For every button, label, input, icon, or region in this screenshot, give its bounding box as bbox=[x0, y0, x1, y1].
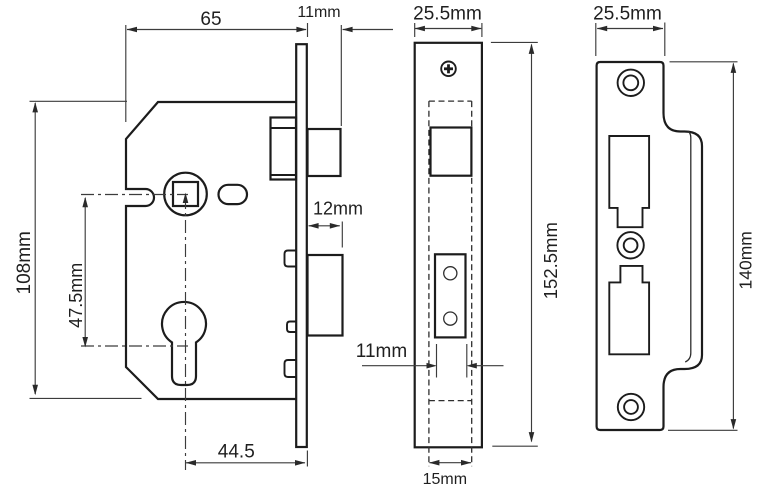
svg-text:25.5mm: 25.5mm bbox=[413, 4, 482, 25]
svg-text:108mm: 108mm bbox=[14, 231, 35, 294]
svg-text:15mm: 15mm bbox=[423, 471, 467, 488]
svg-text:65: 65 bbox=[200, 9, 221, 30]
svg-text:11mm: 11mm bbox=[297, 4, 340, 21]
svg-text:12mm: 12mm bbox=[313, 199, 363, 219]
svg-text:140mm: 140mm bbox=[736, 231, 756, 289]
svg-text:44.5: 44.5 bbox=[218, 442, 255, 463]
svg-text:25.5mm: 25.5mm bbox=[593, 4, 662, 25]
svg-text:152.5mm: 152.5mm bbox=[540, 222, 561, 299]
svg-text:11mm: 11mm bbox=[356, 341, 407, 362]
svg-text:47.5mm: 47.5mm bbox=[66, 263, 86, 328]
